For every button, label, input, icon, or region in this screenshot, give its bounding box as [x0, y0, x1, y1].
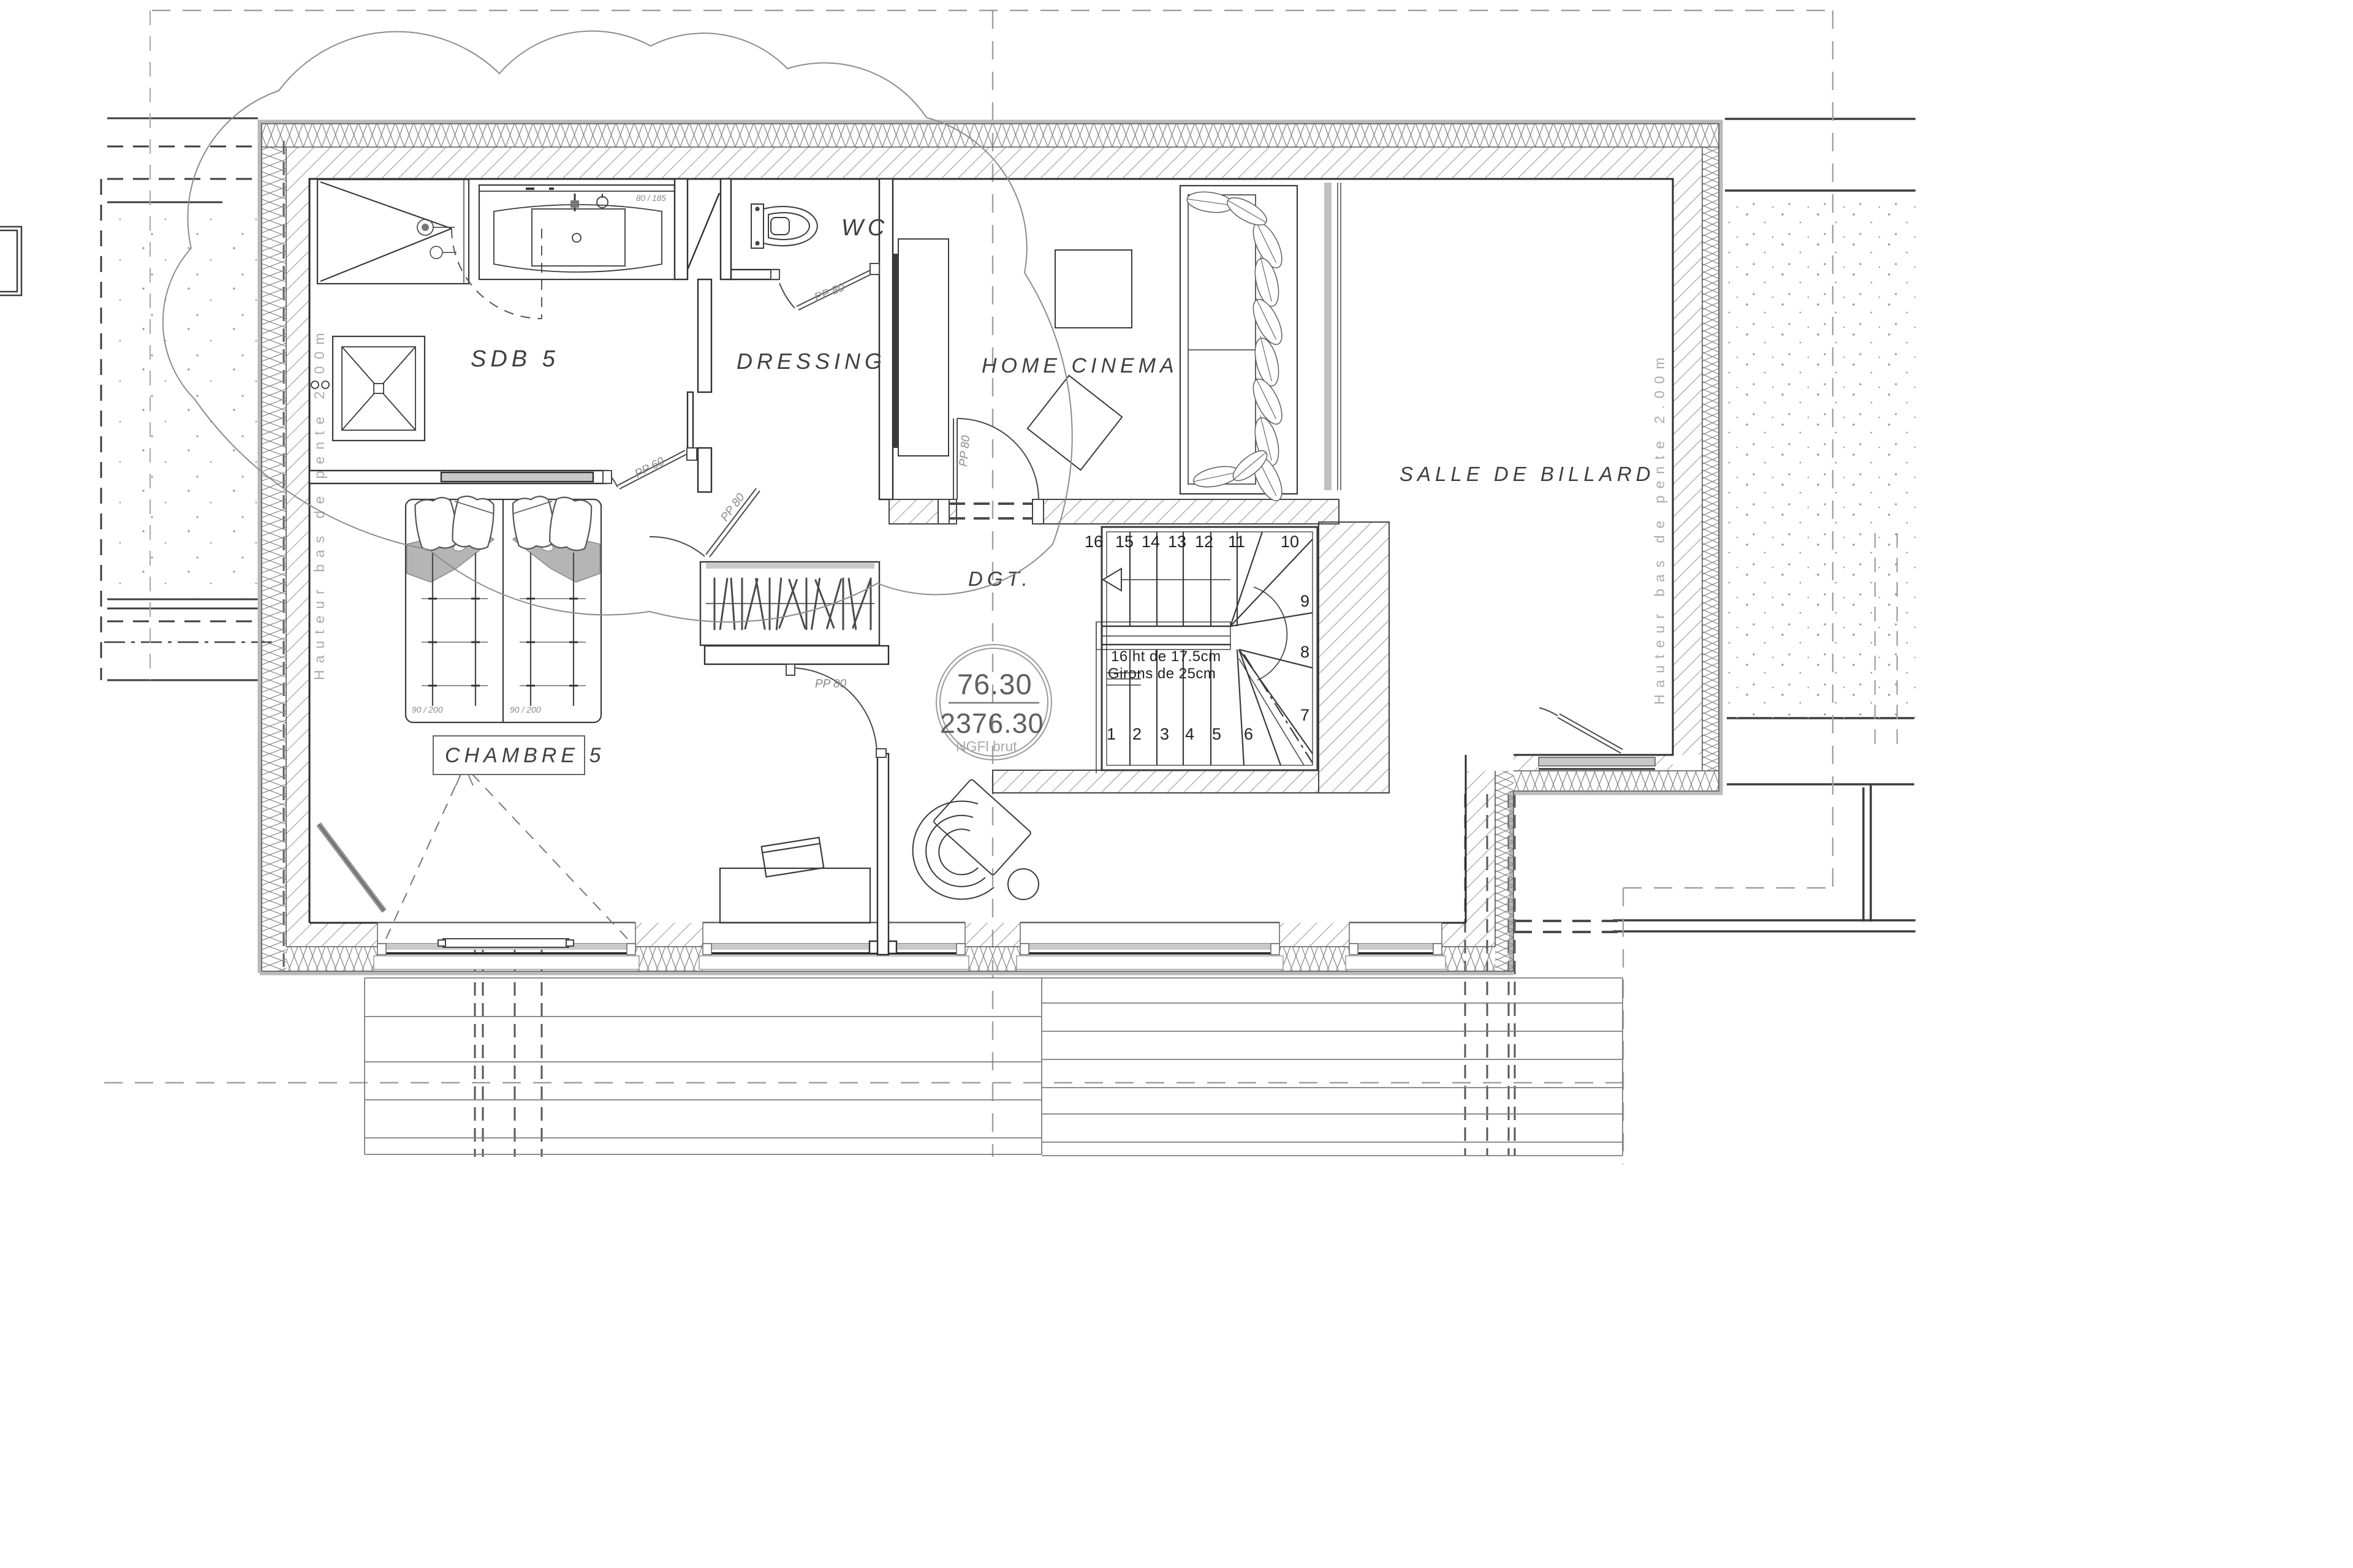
svg-text:9: 9: [1300, 592, 1309, 610]
svg-text:HOME CINEMA: HOME CINEMA: [982, 354, 1178, 377]
svg-text:4: 4: [1185, 725, 1194, 743]
svg-text:80 / 185: 80 / 185: [636, 194, 666, 203]
svg-text:NGFl brut: NGFl brut: [956, 738, 1017, 754]
svg-text:5: 5: [1212, 725, 1221, 743]
svg-text:Girons de 25cm: Girons de 25cm: [1108, 665, 1216, 682]
svg-text:16: 16: [1085, 532, 1103, 551]
svg-text:11: 11: [1228, 532, 1245, 551]
svg-text:1: 1: [1107, 725, 1116, 743]
svg-text:14: 14: [1142, 532, 1160, 551]
svg-text:CHAMBRE 5: CHAMBRE 5: [445, 744, 605, 767]
svg-text:8: 8: [1300, 643, 1309, 661]
svg-text:SDB 5: SDB 5: [471, 346, 559, 372]
svg-text:10: 10: [1281, 532, 1299, 551]
svg-text:16 ht de 17.5cm: 16 ht de 17.5cm: [1111, 648, 1221, 665]
svg-text:Hauteur bas de pente 2.00m: Hauteur bas de pente 2.00m: [1651, 350, 1667, 705]
svg-text:Hauteur bas de pente 2.00m: Hauteur bas de pente 2.00m: [311, 326, 327, 680]
svg-text:76.30: 76.30: [957, 668, 1033, 700]
svg-text:7: 7: [1300, 706, 1309, 724]
svg-text:2376.30: 2376.30: [940, 708, 1044, 739]
svg-text:3: 3: [1160, 725, 1169, 743]
svg-text:15: 15: [1115, 532, 1134, 551]
svg-text:6: 6: [1244, 725, 1253, 743]
svg-text:SALLE DE BILLARD: SALLE DE BILLARD: [1400, 463, 1654, 485]
svg-text:PP 80: PP 80: [815, 678, 846, 691]
svg-text:WC: WC: [841, 215, 889, 241]
svg-text:PP 80: PP 80: [957, 434, 972, 467]
svg-text:12: 12: [1195, 532, 1213, 551]
svg-text:90 / 200: 90 / 200: [412, 705, 443, 714]
svg-text:DGT.: DGT.: [968, 567, 1032, 590]
svg-text:13: 13: [1168, 532, 1186, 551]
svg-text:DRESSING: DRESSING: [737, 349, 886, 374]
svg-text:2: 2: [1132, 725, 1142, 743]
svg-text:90 / 200: 90 / 200: [510, 705, 541, 714]
